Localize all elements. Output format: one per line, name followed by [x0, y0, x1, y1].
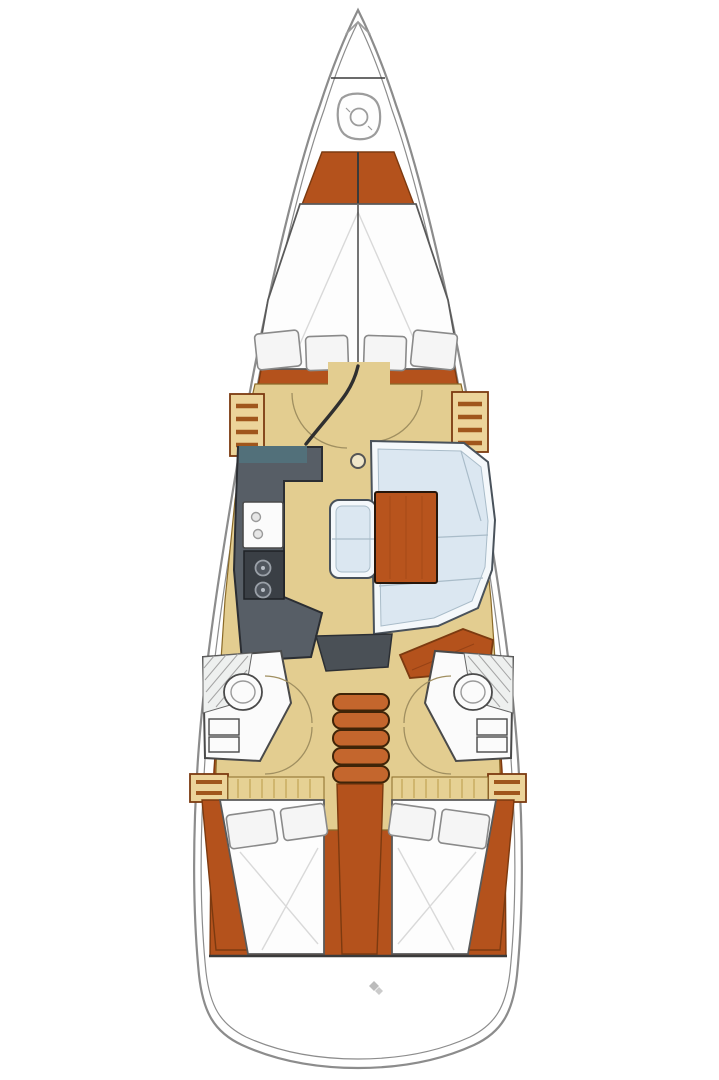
- step: [333, 766, 389, 783]
- pillow: [254, 330, 302, 370]
- step: [333, 748, 389, 765]
- companionway-landing: [316, 634, 392, 671]
- pillow: [410, 330, 458, 370]
- pillow: [280, 803, 328, 841]
- boat-floor-plan: [0, 0, 719, 1080]
- head-sink-cabinet: [477, 737, 507, 752]
- galley-stove: [244, 551, 284, 599]
- aft-locker-port: [190, 774, 228, 802]
- port-aft-cabin: [202, 800, 328, 954]
- mast-post: [351, 454, 365, 468]
- head-sink-cabinet: [209, 719, 239, 735]
- pillow: [438, 809, 490, 849]
- pillow: [226, 809, 278, 849]
- floor-plan-canvas: [0, 0, 719, 1080]
- galley-fridge-top: [239, 446, 307, 463]
- pillow: [388, 803, 436, 841]
- toilet-icon: [224, 674, 262, 710]
- step: [333, 694, 389, 711]
- step: [333, 730, 389, 747]
- windlass-icon: [338, 94, 380, 140]
- starboard-aft-cabin: [388, 800, 514, 954]
- aft-locker-starboard: [488, 774, 526, 802]
- engine-box: [337, 784, 383, 954]
- salon-bench: [330, 500, 376, 578]
- galley-sink: [243, 502, 283, 548]
- toilet-icon: [454, 674, 492, 710]
- head-sink-cabinet: [209, 737, 239, 752]
- head-sink-cabinet: [477, 719, 507, 735]
- step: [333, 712, 389, 729]
